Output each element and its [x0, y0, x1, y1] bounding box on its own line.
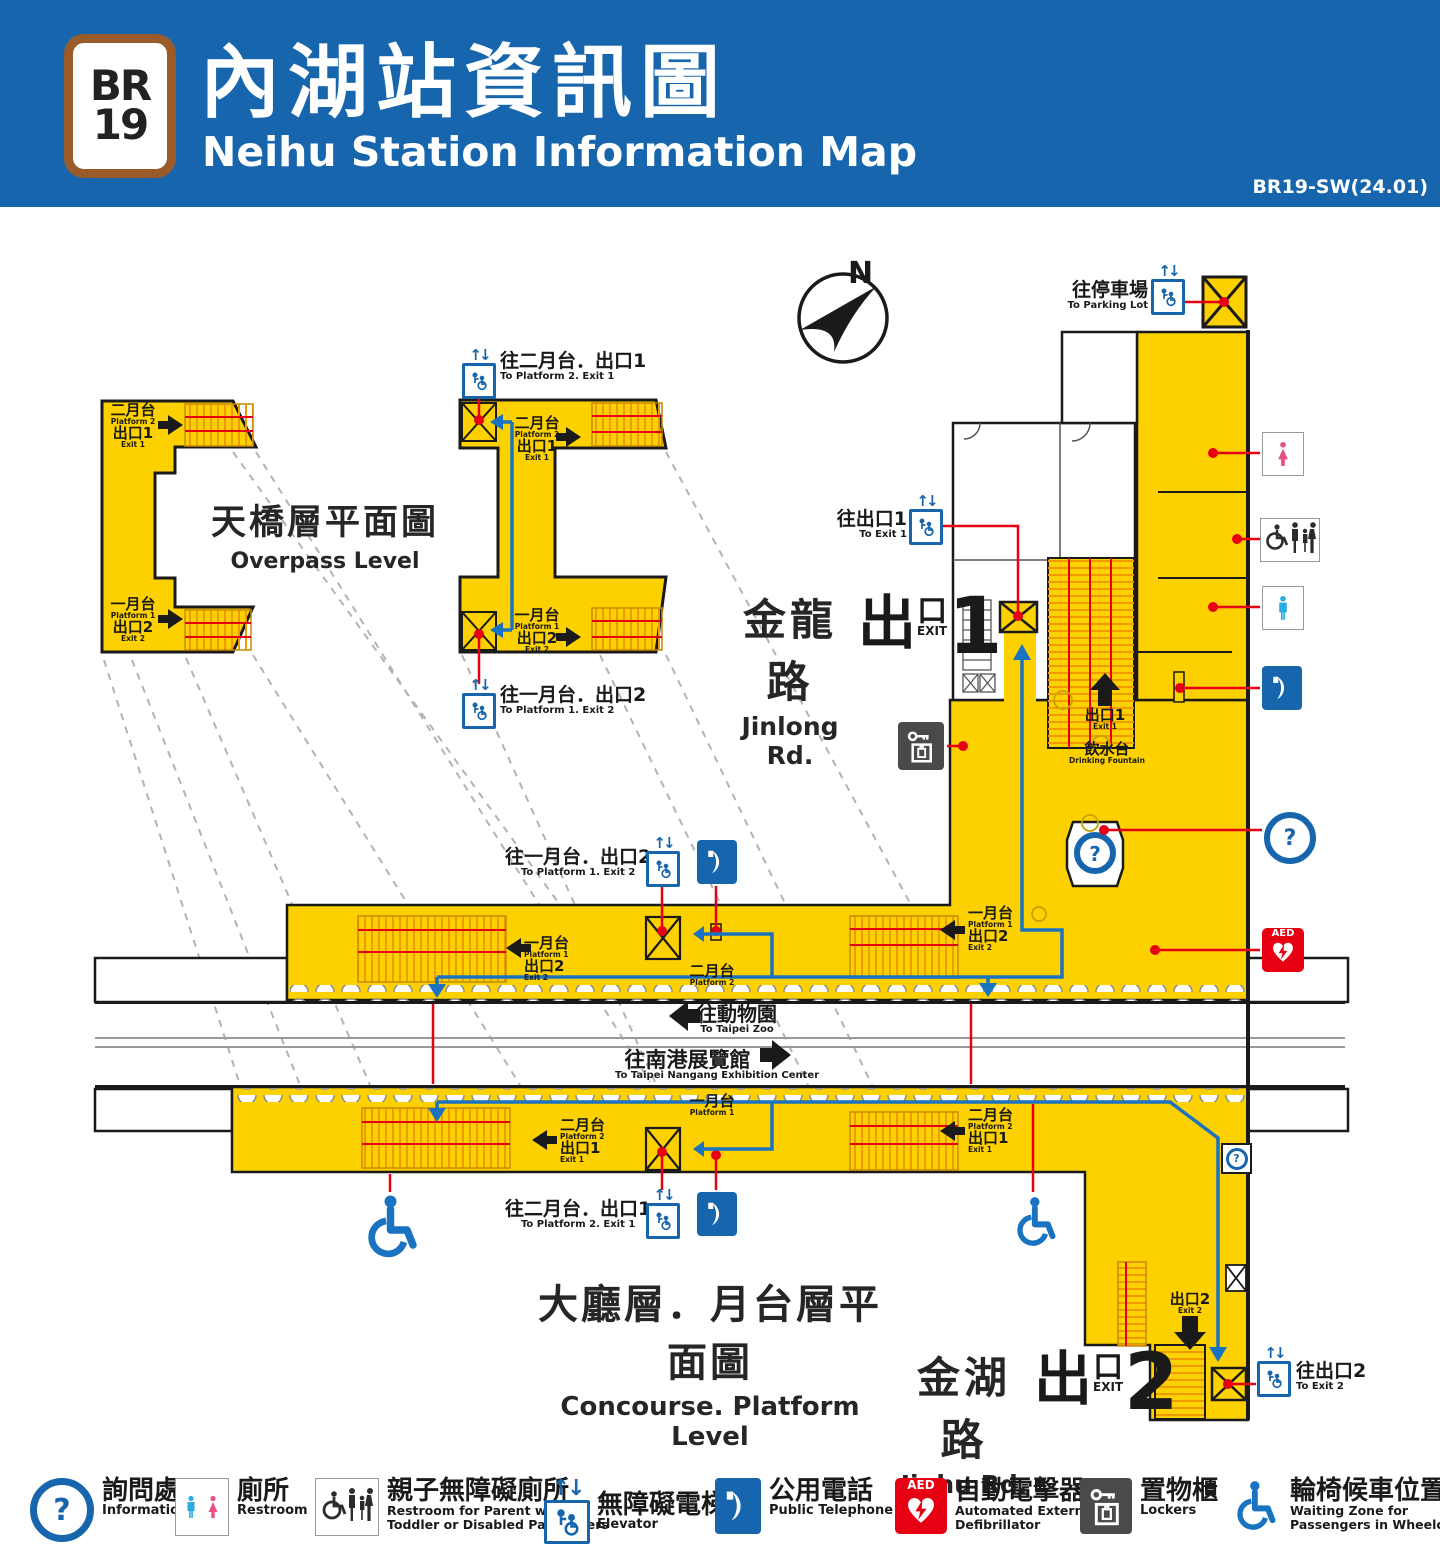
- compass-north-label: N: [848, 258, 873, 290]
- page-title-en: Neihu Station Information Map: [202, 128, 917, 176]
- legend-item-wheelchair-zone: 輪椅候車位置Waiting Zone forPassengers in Whee…: [1230, 1478, 1440, 1534]
- to-platform1-exit2-concourse-label: 往一月台．出口2 To Platform 1. Exit 2: [505, 848, 651, 878]
- up-down-arrows-icon: ↑↓: [469, 348, 488, 363]
- information-icon: ?: [30, 1478, 94, 1542]
- up-down-arrows-icon: ↑↓: [653, 1188, 672, 1203]
- up-down-arrows-icon: ↑↓: [916, 494, 935, 509]
- compass-icon: [799, 274, 887, 362]
- public-telephone-icon: [697, 840, 737, 884]
- wheelchair-waiting-icon: [364, 1194, 420, 1264]
- elevator-icon: ↑↓: [1152, 264, 1184, 315]
- lower-strip-right-labels: 二月台Platform 2 出口1Exit 1: [968, 1108, 1020, 1155]
- elevator-icon: ↑↓: [910, 494, 942, 545]
- lockers-icon: [1080, 1478, 1132, 1534]
- to-parking-label: 往停車場 To Parking Lot: [1040, 281, 1148, 311]
- up-down-arrows-icon: ↑↓: [469, 678, 488, 693]
- overpass-middle-top-labels: 二月台Platform 2 出口1Exit 1: [514, 416, 560, 463]
- exit1-top-room: [1062, 332, 1137, 423]
- line-badge: BR 19: [64, 34, 176, 178]
- to-platform2-exit1-concourse-label: 往二月台．出口1 To Platform 2. Exit 1: [505, 1200, 651, 1230]
- men-restroom-icon: [1262, 586, 1304, 630]
- legend-item-information: ? 詢問處Information: [30, 1478, 188, 1542]
- family-accessible-restroom-icon: [1260, 518, 1320, 562]
- exit2-service-elevator: [1226, 1265, 1246, 1291]
- elevator-icon: ↑↓: [1258, 1346, 1290, 1397]
- upper-strip-platform2-label: 二月台Platform 2: [682, 964, 742, 987]
- exit2-big-sign: 出 口EXIT 2: [1034, 1352, 1176, 1414]
- to-platform1-exit2-label: 往一月台．出口2 To Platform 1. Exit 2: [500, 686, 646, 716]
- map-version-code: BR19-SW(24.01): [1252, 176, 1428, 198]
- wheelchair-waiting-icon: [1014, 1196, 1058, 1252]
- to-platform2-exit1-label: 往二月台．出口1 To Platform 2. Exit 1: [500, 352, 646, 382]
- upper-strip-left-labels: 一月台Platform 1 出口2Exit 2: [524, 936, 582, 983]
- up-down-arrows-icon: ↑↓: [653, 836, 672, 851]
- strip-elevator-shafts: [646, 917, 680, 1170]
- family-accessible-restroom-icon: [315, 1478, 379, 1536]
- to-exit2-label: 往出口2 To Exit 2: [1296, 1362, 1366, 1392]
- wheelchair-waiting-icon: [1230, 1478, 1282, 1534]
- overpass-middle-bottom-labels: 一月台Platform 1 出口2Exit 2: [514, 608, 560, 655]
- lower-strip-left-labels: 二月台Platform 2 出口1Exit 1: [560, 1118, 618, 1165]
- information-counter: ?: [1067, 822, 1123, 886]
- women-restroom-icon: [1262, 432, 1304, 476]
- jinlong-road-label: 金龍路 Jinlong Rd.: [725, 586, 855, 770]
- elevator-icon: ↑↓: [463, 678, 495, 729]
- legend-item-telephone: 公用電話Public Telephone: [715, 1478, 893, 1534]
- page-title-zh: 內湖站資訊圖: [200, 18, 728, 134]
- information-icon: ?: [1221, 1143, 1252, 1174]
- public-telephone-icon: [715, 1478, 761, 1534]
- overpass-elevator-shafts: [462, 403, 496, 650]
- upper-strip-right-labels: 一月台Platform 1 出口2Exit 2: [968, 906, 1020, 953]
- exit1-big-sign: 出 口EXIT 1: [858, 596, 1000, 658]
- aed-icon: AED: [1262, 928, 1304, 972]
- exit1-inner-label: 出口1Exit 1: [1079, 708, 1131, 731]
- overpass-middle-stairs: [592, 403, 662, 650]
- elevator-icon: ↑↓: [545, 1478, 589, 1544]
- overpass-left-bottom-labels: 一月台Platform 1 出口2Exit 2: [108, 597, 158, 644]
- restroom-icon: [175, 1478, 229, 1536]
- legend-item-aed: AED 自動電擊器Automated ExternalDefibrillator: [895, 1478, 1096, 1534]
- public-telephone-icon: [1262, 666, 1302, 710]
- header-banner: BR 19 內湖站資訊圖 Neihu Station Information M…: [0, 0, 1440, 207]
- to-nangang-label: 往南港展覽館 To Taipei Nangang Exhibition Cent…: [615, 1049, 760, 1082]
- drinking-fountain-label: 飲水台Drinking Fountain: [1066, 742, 1148, 765]
- up-down-arrows-icon: ↑↓: [1158, 264, 1177, 279]
- overpass-level-title: 天橋層平面圖 Overpass Level: [185, 494, 465, 574]
- legend-item-elevator: ↑↓ 無障礙電梯Elevator: [545, 1478, 727, 1544]
- legend-item-restroom: 廁所Restroom: [175, 1478, 308, 1536]
- exit2-inner-label: 出口2Exit 2: [1162, 1292, 1218, 1315]
- to-zoo-label: 往動物園 To Taipei Zoo: [697, 1004, 777, 1036]
- svg-text:?: ?: [1089, 842, 1101, 866]
- legend-item-lockers: 置物櫃Lockers: [1080, 1478, 1218, 1534]
- elevator-icon: ↑↓: [647, 836, 679, 887]
- information-icon: ?: [1264, 812, 1316, 864]
- up-down-arrows-icon: ↑↓: [552, 1478, 583, 1500]
- lower-strip-platform1-label: 一月台Platform 1: [682, 1094, 742, 1117]
- lockers-icon: [898, 722, 944, 770]
- concourse-level-title: 大廳層．月台層平面圖 Concourse. Platform Level: [520, 1272, 900, 1452]
- aed-icon: AED: [895, 1478, 947, 1534]
- badge-station-number: 19: [93, 106, 147, 145]
- elevator-icon: ↑↓: [463, 348, 495, 399]
- public-telephone-icon: [697, 1192, 737, 1236]
- up-down-arrows-icon: ↑↓: [1264, 1346, 1283, 1361]
- overpass-left-top-labels: 二月台Platform 2 出口1Exit 1: [108, 403, 158, 450]
- exit1-corridor: [1137, 332, 1248, 700]
- to-exit1-label: 往出口1 To Exit 1: [795, 510, 907, 540]
- elevator-icon: ↑↓: [647, 1188, 679, 1239]
